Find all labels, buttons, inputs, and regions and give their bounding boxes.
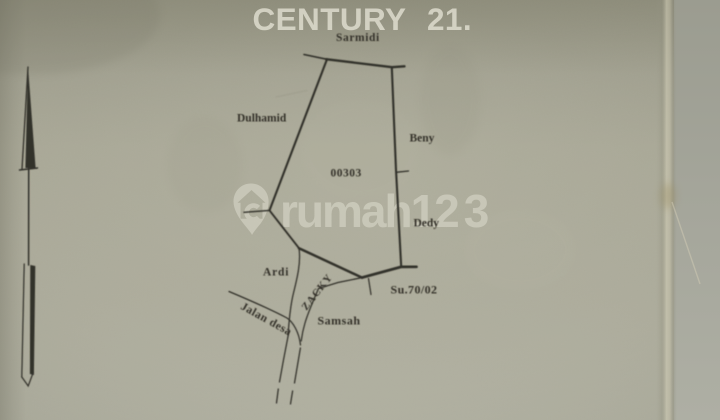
svg-text:rumah123: rumah123 bbox=[280, 185, 488, 237]
svg-text:00303: 00303 bbox=[331, 168, 362, 180]
svg-text:Dulhamid: Dulhamid bbox=[237, 113, 287, 125]
svg-text:Ardi: Ardi bbox=[263, 267, 289, 279]
svg-text:Samsah: Samsah bbox=[318, 314, 361, 328]
svg-text:Beny: Beny bbox=[410, 133, 435, 145]
svg-text:Dedy: Dedy bbox=[414, 218, 440, 230]
svg-text:Su.70/02: Su.70/02 bbox=[391, 283, 438, 297]
svg-text:Sarmidi: Sarmidi bbox=[336, 32, 380, 44]
